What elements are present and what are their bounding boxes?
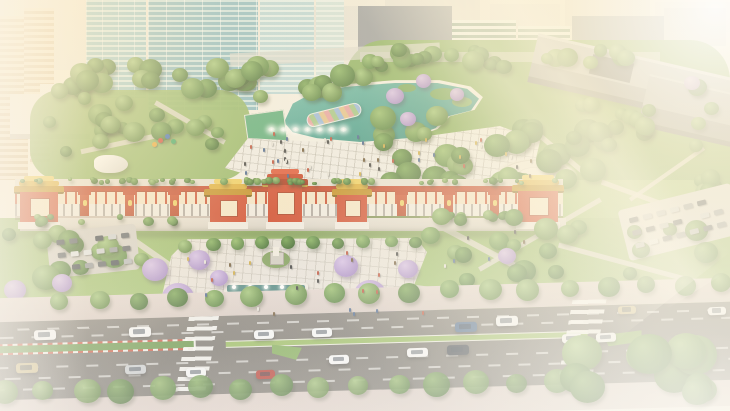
tree-band-top-right [594,44,608,56]
street-trees-bottom [423,372,450,397]
pedestrian [205,293,207,297]
pedestrian [273,132,275,136]
street-trees-top [90,291,110,309]
front-trees-left [2,228,16,241]
car-windshield [451,347,463,352]
foreground-trees [682,379,712,406]
pedestrian [280,140,282,144]
lantern-pylon [80,191,89,216]
pedestrian [273,312,275,316]
monument-statue [273,247,279,256]
street-trees-bottom [107,379,134,404]
car [34,330,56,341]
pylon-cap [123,191,136,195]
front-trees-left [33,232,52,249]
parked-car [83,250,91,256]
playground-equipment [152,142,157,147]
fountain-spray [280,127,287,132]
jacaranda-tree [334,255,358,277]
parked-car [109,247,117,253]
pedestrian [376,309,378,313]
fountain-jet [232,285,236,289]
lantern-pylon [125,191,134,216]
pedestrian [327,172,329,176]
pedestrian [523,240,525,244]
fountain-spray [328,127,335,132]
parked-car [96,248,104,254]
roof-garden [99,180,104,184]
foreground-trees [570,371,605,403]
building-front-shrubs [167,216,177,225]
street-trees-top [479,279,502,300]
street-trees-top [130,293,148,310]
pedestrian [277,159,279,163]
pedestrian [453,259,455,263]
car [496,316,518,327]
parked-car [95,235,103,241]
tree-band-top-left [253,90,268,104]
parked-car [108,234,116,240]
fountain-spray [304,127,311,132]
street-trees-top [440,280,460,298]
jacaranda-tree [398,260,418,278]
pedestrian [425,138,427,142]
roof-garden [272,177,279,184]
pedestrian [290,265,292,269]
fountain-jet [280,285,284,289]
car [708,307,726,316]
car [16,363,38,374]
car-windshield [411,350,423,355]
foreground-trees [627,334,672,374]
fountain-spray [316,127,323,132]
tree-band-top-left [181,78,204,99]
roof-garden [361,178,368,185]
pedestrian [250,145,252,149]
car-windshield [712,308,722,312]
plaza-tree-row [409,237,422,249]
car-windshield [258,331,269,336]
fountain-spray [292,127,299,132]
pedestrian [263,148,265,152]
car [312,328,332,338]
lawn-trees-right [454,214,467,226]
playground-equipment [158,138,163,143]
playground-equipment [165,134,170,139]
parked-cars-left [54,230,140,281]
pedestrian [396,252,398,256]
street-trees-bottom [270,374,293,396]
front-trees-mid [455,247,472,263]
pedestrian [353,312,355,316]
street-trees-top [324,283,345,303]
tower-panel [220,200,239,217]
park-trees-left [115,95,133,111]
tower-base [208,222,248,229]
parked-car [58,252,66,258]
park-trees-east-edge [704,102,719,115]
car [329,355,349,365]
parked-car [713,209,723,216]
pedestrian [286,137,288,141]
pylon-lantern [128,200,132,206]
roof-garden [427,180,433,185]
pedestrian [369,163,371,167]
pedestrian [282,147,284,151]
car-windshield [459,324,471,329]
pedestrian [362,141,364,145]
parked-car [69,238,77,244]
pedestrian [394,261,396,265]
car-windshield [133,329,145,334]
street-trees-bottom [74,379,100,403]
plaza-tree-row [356,235,370,248]
park-trees-left [123,122,145,142]
car-windshield [500,318,512,323]
pedestrian [349,308,351,312]
park-trees-north [642,104,656,117]
pedestrian [233,271,235,275]
park-trees-left [211,127,224,138]
car-windshield [190,369,201,374]
tower-panel [277,192,295,214]
pylon-cap [395,191,408,195]
pedestrian [327,140,329,144]
pylon-lantern [173,200,177,206]
tower-body [337,195,367,222]
car-windshield [20,365,32,370]
car-windshield [38,332,50,337]
park-trees-left [43,116,56,128]
street-trees-bottom [307,377,330,398]
roof-garden [20,179,25,183]
roof-garden [368,178,376,185]
street-trees-top [240,286,263,308]
car [129,327,151,338]
pylon-lantern [400,200,404,206]
pedestrian [330,137,332,141]
parked-car [85,262,93,268]
street-trees-top [205,290,224,307]
parked-car [124,258,132,264]
parked-car [72,264,80,270]
tower-panel [345,200,361,217]
tree-band-top-right [617,50,635,66]
pedestrian [362,289,364,293]
roof-garden [452,179,458,184]
pylon-cap [168,191,181,195]
pedestrian [245,171,247,175]
parked-car [122,245,130,251]
fountain-spray [340,127,347,132]
building-front-shrubs [143,217,154,227]
parked-car [121,233,129,239]
lawn-trees-right [432,208,451,225]
roof-garden [442,178,448,183]
tower-body [210,195,246,222]
park-trees-east-edge [691,117,706,130]
front-trees-mid [421,227,440,244]
pedestrian [377,158,379,162]
park-trees-left [78,92,92,104]
car-windshield [129,367,141,372]
street-trees-bottom [463,370,489,394]
pylon-lantern [447,200,451,206]
lantern-pylon [170,191,179,216]
car [125,365,146,375]
pylon-lantern [493,200,497,206]
pedestrian [359,172,361,176]
canopy-tent [94,155,128,173]
park-trees-west [370,106,396,130]
playground-equipment [171,139,176,144]
car-windshield [260,371,271,376]
pedestrian [418,151,420,155]
pedestrian [351,258,353,262]
street-trees-bottom [389,375,410,394]
roof-garden [68,177,72,181]
pylon-cap [442,191,455,195]
car [447,345,469,356]
plaza-tree-row [206,238,220,251]
car [407,348,428,358]
pedestrian [383,144,385,148]
pedestrian [211,278,213,282]
tower-body [268,185,303,222]
pedestrian [324,138,326,142]
street-trees-top [398,283,420,303]
plaza-tree-row [385,236,398,248]
building-front-shrubs [78,219,85,225]
lantern-pylon [397,191,406,216]
parked-car [98,261,106,267]
park-trees-left [205,138,218,150]
building-front-shrubs [117,214,123,220]
pedestrian [392,159,394,163]
car-windshield [333,356,344,361]
plaza-tree-row [231,237,244,249]
parked-car [70,251,78,257]
tower-panel [30,198,49,217]
tree-band-top-left [354,68,373,85]
park-trees-left [92,134,109,149]
pedestrian [187,257,189,261]
tower-base [335,222,369,229]
roof-garden [149,179,156,185]
car [254,330,274,340]
parked-car [717,221,727,228]
park-trees-west [374,133,393,150]
street-trees-bottom [188,375,213,398]
pedestrian [296,286,298,290]
parked-car [56,239,64,245]
pedestrian [309,165,311,169]
street-trees-bottom [348,376,368,395]
park-trees-left [149,108,165,122]
front-trees-mid [489,232,509,250]
roof-garden [220,178,228,185]
street-trees-bottom [506,374,527,393]
pedestrian [376,290,378,294]
tree-band-top-left [302,84,321,101]
car-windshield [316,329,327,334]
car [455,322,477,333]
jacaranda-tree [188,250,210,270]
street-trees-top [516,279,540,301]
pagoda-tower [204,179,252,229]
pedestrian [204,260,206,264]
street-trees-bottom [32,381,52,400]
pedestrian [422,311,424,315]
pedestrian [363,158,365,162]
aerial-park-rendering [0,0,730,411]
pedestrian [284,149,286,153]
pedestrian [271,142,273,146]
tower-base [266,222,305,229]
pylon-cap [78,191,91,195]
pedestrian [357,135,359,139]
pedestrian [272,160,274,164]
plaza-tree-row [178,240,192,253]
fountain-jet [264,285,268,289]
pedestrian [433,153,435,157]
pagoda-tower [332,179,372,229]
street-trees-top [50,293,68,310]
pylon-lantern [83,200,87,206]
parked-car [111,260,119,266]
tree-band-top-left [76,70,99,90]
